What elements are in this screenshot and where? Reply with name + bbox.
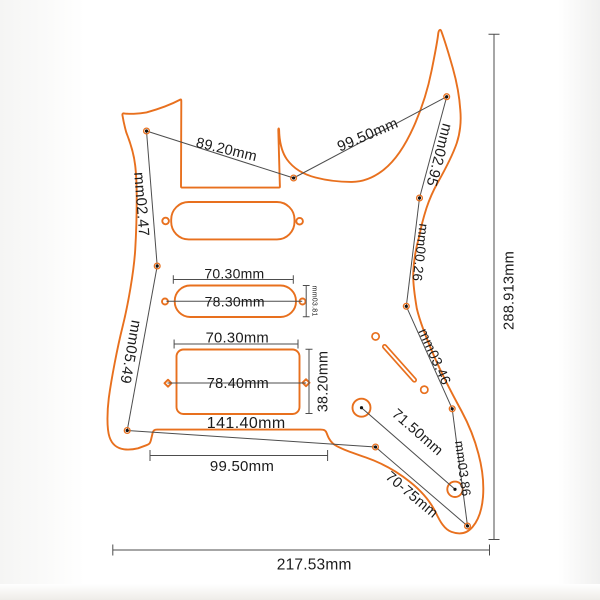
svg-text:70.30mm: 70.30mm [206, 331, 269, 347]
svg-text:70.30mm: 70.30mm [204, 265, 264, 281]
svg-text:99.50mm: 99.50mm [210, 458, 274, 475]
svg-text:217.53mm: 217.53mm [277, 557, 352, 574]
svg-text:mm03.81: mm03.81 [310, 286, 317, 317]
svg-text:141.40mm: 141.40mm [207, 415, 286, 432]
svg-text:78.40mm: 78.40mm [207, 376, 269, 392]
svg-text:78.30mm: 78.30mm [205, 293, 265, 309]
svg-text:288.913mm: 288.913mm [502, 251, 518, 330]
svg-text:38.20mm: 38.20mm [316, 351, 332, 412]
